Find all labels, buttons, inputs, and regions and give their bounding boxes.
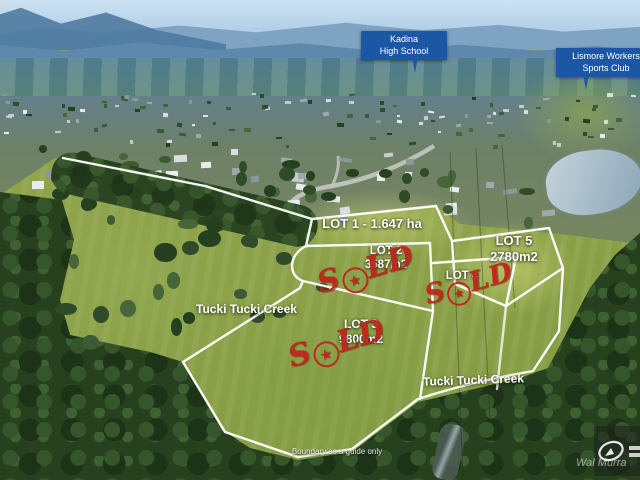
aerial-photo: LOT 1 - 1.647 ha LOT 5 2780m2 LOT 2 3587… bbox=[0, 0, 640, 480]
watermark-text: Wal Murra bbox=[576, 457, 640, 469]
kadina-high-school-badge: Kadina High School bbox=[361, 31, 447, 60]
lot1-label-text: LOT 1 - 1.647 ha bbox=[297, 216, 447, 232]
lismore-sports-club-badge: Lismore Workers Sports Club bbox=[556, 48, 640, 77]
lot5-label: LOT 5 2780m2 bbox=[468, 233, 560, 266]
boundary-disclaimer: Boundary as a guide only bbox=[252, 447, 422, 456]
lot1-label: LOT 1 - 1.647 ha bbox=[297, 216, 447, 232]
lot5-name: LOT 5 bbox=[468, 233, 560, 249]
creek-label-upper: Tucki Tucki Creek bbox=[196, 302, 297, 316]
lismore-badge-pointer bbox=[583, 74, 589, 90]
kadina-badge-pointer bbox=[412, 57, 418, 73]
